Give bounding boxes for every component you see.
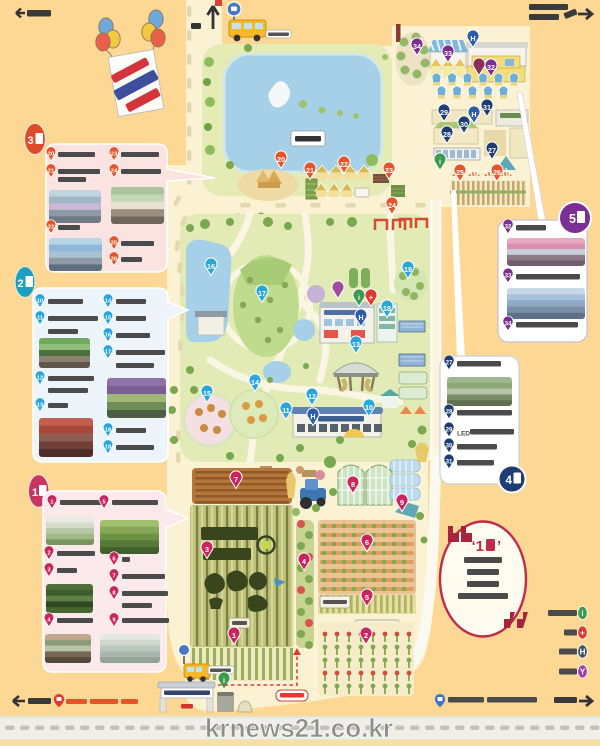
svg-text:Y: Y xyxy=(580,667,586,676)
svg-text:12: 12 xyxy=(308,392,316,401)
svg-text:+: + xyxy=(580,628,585,637)
svg-text:krnews21.co.kr: krnews21.co.kr xyxy=(205,713,393,743)
svg-text:i: i xyxy=(439,157,441,166)
svg-text:24: 24 xyxy=(388,201,396,210)
svg-text:30: 30 xyxy=(446,442,453,449)
svg-text:16: 16 xyxy=(207,262,215,271)
svg-text:6: 6 xyxy=(112,556,115,562)
svg-text:25: 25 xyxy=(456,168,464,177)
svg-text:1: 1 xyxy=(32,487,38,499)
svg-text:19: 19 xyxy=(404,265,412,274)
svg-text:33: 33 xyxy=(444,49,452,58)
svg-text:LED: LED xyxy=(457,431,470,438)
svg-text:5: 5 xyxy=(569,212,576,226)
svg-text:12: 12 xyxy=(37,375,43,381)
svg-text:6: 6 xyxy=(365,538,369,547)
svg-text:11: 11 xyxy=(282,406,290,415)
svg-text:+: + xyxy=(369,293,373,302)
svg-text:30: 30 xyxy=(460,120,468,129)
svg-text:2: 2 xyxy=(364,631,368,640)
svg-text:H: H xyxy=(470,34,475,43)
svg-text:15: 15 xyxy=(105,315,112,321)
svg-text:28: 28 xyxy=(443,130,451,139)
svg-text:4: 4 xyxy=(506,475,513,487)
svg-text:10: 10 xyxy=(37,298,43,304)
svg-text:‘1: ‘1 xyxy=(471,538,484,555)
svg-text:32: 32 xyxy=(487,63,495,72)
svg-text:3: 3 xyxy=(47,567,50,573)
svg-text:10: 10 xyxy=(365,403,373,412)
svg-text:25: 25 xyxy=(111,240,118,246)
svg-text:20: 20 xyxy=(48,151,54,157)
svg-text:H: H xyxy=(358,313,363,322)
svg-text:18: 18 xyxy=(105,427,112,433)
svg-text:29: 29 xyxy=(440,108,448,117)
svg-text:7: 7 xyxy=(112,573,115,579)
svg-text:9: 9 xyxy=(112,617,115,623)
svg-text:15: 15 xyxy=(203,389,211,398)
svg-text:31: 31 xyxy=(446,458,453,465)
svg-text:i: i xyxy=(223,676,225,685)
svg-text:23: 23 xyxy=(385,166,393,175)
svg-text:31: 31 xyxy=(483,103,491,112)
svg-text:29: 29 xyxy=(446,426,453,433)
svg-text:7: 7 xyxy=(234,475,238,484)
svg-text:H: H xyxy=(310,412,315,421)
svg-text:1: 1 xyxy=(232,631,236,640)
svg-text:24: 24 xyxy=(111,168,118,174)
svg-text:H: H xyxy=(580,647,586,656)
svg-text:9: 9 xyxy=(400,498,404,507)
svg-text:8: 8 xyxy=(351,480,355,489)
svg-text:33: 33 xyxy=(505,272,512,279)
svg-text:i: i xyxy=(581,609,583,618)
svg-text:11: 11 xyxy=(37,315,44,321)
svg-text:19: 19 xyxy=(105,444,111,450)
svg-text:13: 13 xyxy=(37,402,43,408)
svg-text:H: H xyxy=(471,110,476,119)
svg-text:16: 16 xyxy=(105,332,111,338)
svg-text:34: 34 xyxy=(505,320,512,327)
svg-text:22: 22 xyxy=(340,160,348,169)
svg-text:13: 13 xyxy=(352,340,360,349)
svg-text:5: 5 xyxy=(365,593,369,602)
svg-text:21: 21 xyxy=(306,166,314,175)
svg-text:22: 22 xyxy=(48,224,54,230)
svg-text:’: ’ xyxy=(497,538,501,555)
svg-text:17: 17 xyxy=(258,289,266,298)
svg-text:14: 14 xyxy=(251,378,259,387)
svg-text:18: 18 xyxy=(383,304,391,313)
svg-text:23: 23 xyxy=(111,151,117,157)
svg-text:26: 26 xyxy=(493,168,501,177)
svg-text:27: 27 xyxy=(488,146,496,155)
svg-text:26: 26 xyxy=(111,256,117,262)
svg-text:i: i xyxy=(358,293,360,302)
svg-text:3: 3 xyxy=(205,545,209,554)
svg-text:21: 21 xyxy=(48,168,55,174)
svg-text:3: 3 xyxy=(28,135,34,147)
svg-text:32: 32 xyxy=(505,223,512,230)
svg-text:2: 2 xyxy=(47,550,50,556)
svg-text:14: 14 xyxy=(105,298,112,304)
svg-text:17: 17 xyxy=(105,349,111,355)
svg-text:4: 4 xyxy=(302,557,306,566)
svg-text:27: 27 xyxy=(446,359,453,366)
svg-text:28: 28 xyxy=(446,408,453,415)
svg-text:34: 34 xyxy=(413,42,421,51)
svg-text:20: 20 xyxy=(277,155,285,164)
svg-text:2: 2 xyxy=(18,278,24,290)
